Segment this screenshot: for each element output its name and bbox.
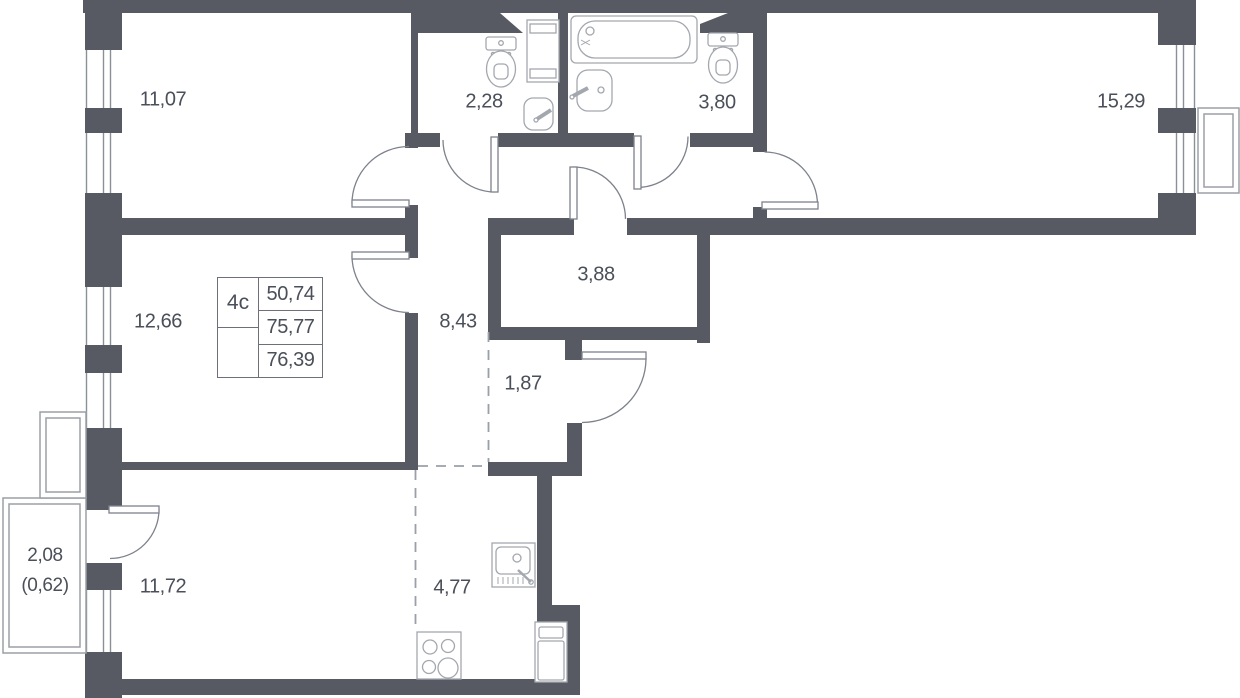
toilet-icon [486, 37, 516, 87]
bathtub-icon [571, 16, 697, 63]
unit-total-area-cell: 76,39 [259, 345, 322, 377]
unit-area-cell: 75,77 [259, 311, 322, 344]
door-wc-2-28 [443, 137, 498, 192]
room-area-label: 2,28 [465, 91, 502, 114]
door-room-15-29 [762, 152, 818, 209]
washing-machine-icon [527, 20, 559, 82]
floorplan-page: 11,07 2,28 3,80 15,29 12,66 8,43 3,88 1,… [0, 0, 1240, 698]
small-sink-icon [524, 98, 553, 130]
fridge-icon [535, 622, 567, 682]
room-area-label: 15,29 [1097, 91, 1145, 114]
unit-table-empty-cell [218, 328, 258, 377]
toilet-icon-2 [708, 33, 738, 83]
kitchen-sink-icon [492, 543, 535, 587]
door-room-12-66 [352, 252, 409, 313]
stove-icon [417, 632, 461, 679]
room-area-label: 12,66 [134, 311, 182, 334]
balcony-coef-area-label: (0,62) [21, 575, 68, 597]
balcony-area-label: 2,08 [27, 545, 62, 567]
room-area-label: 4,77 [433, 577, 470, 600]
door-bathroom-3-80 [634, 136, 688, 189]
room-area-label: 3,88 [577, 264, 614, 287]
unit-living-area-cell: 50,74 [259, 278, 322, 311]
room-area-label: 3,80 [698, 92, 735, 115]
door-room-11-07 [352, 147, 409, 208]
bathroom-sink-icon [570, 70, 612, 111]
entry-door [582, 352, 646, 423]
doors-layer [109, 136, 818, 559]
unit-type-cell: 4с [218, 278, 258, 328]
unit-info-table: 4с 50,74 75,77 76,39 [217, 277, 323, 378]
room-area-label: 1,87 [504, 373, 541, 396]
room-area-label: 11,72 [140, 576, 187, 599]
door-storage-3-88 [570, 167, 626, 219]
room-area-label: 8,43 [439, 311, 476, 334]
exterior-basket-right [1198, 108, 1239, 193]
room-area-label: 11,07 [140, 89, 187, 112]
exterior-basket-left [40, 412, 86, 498]
